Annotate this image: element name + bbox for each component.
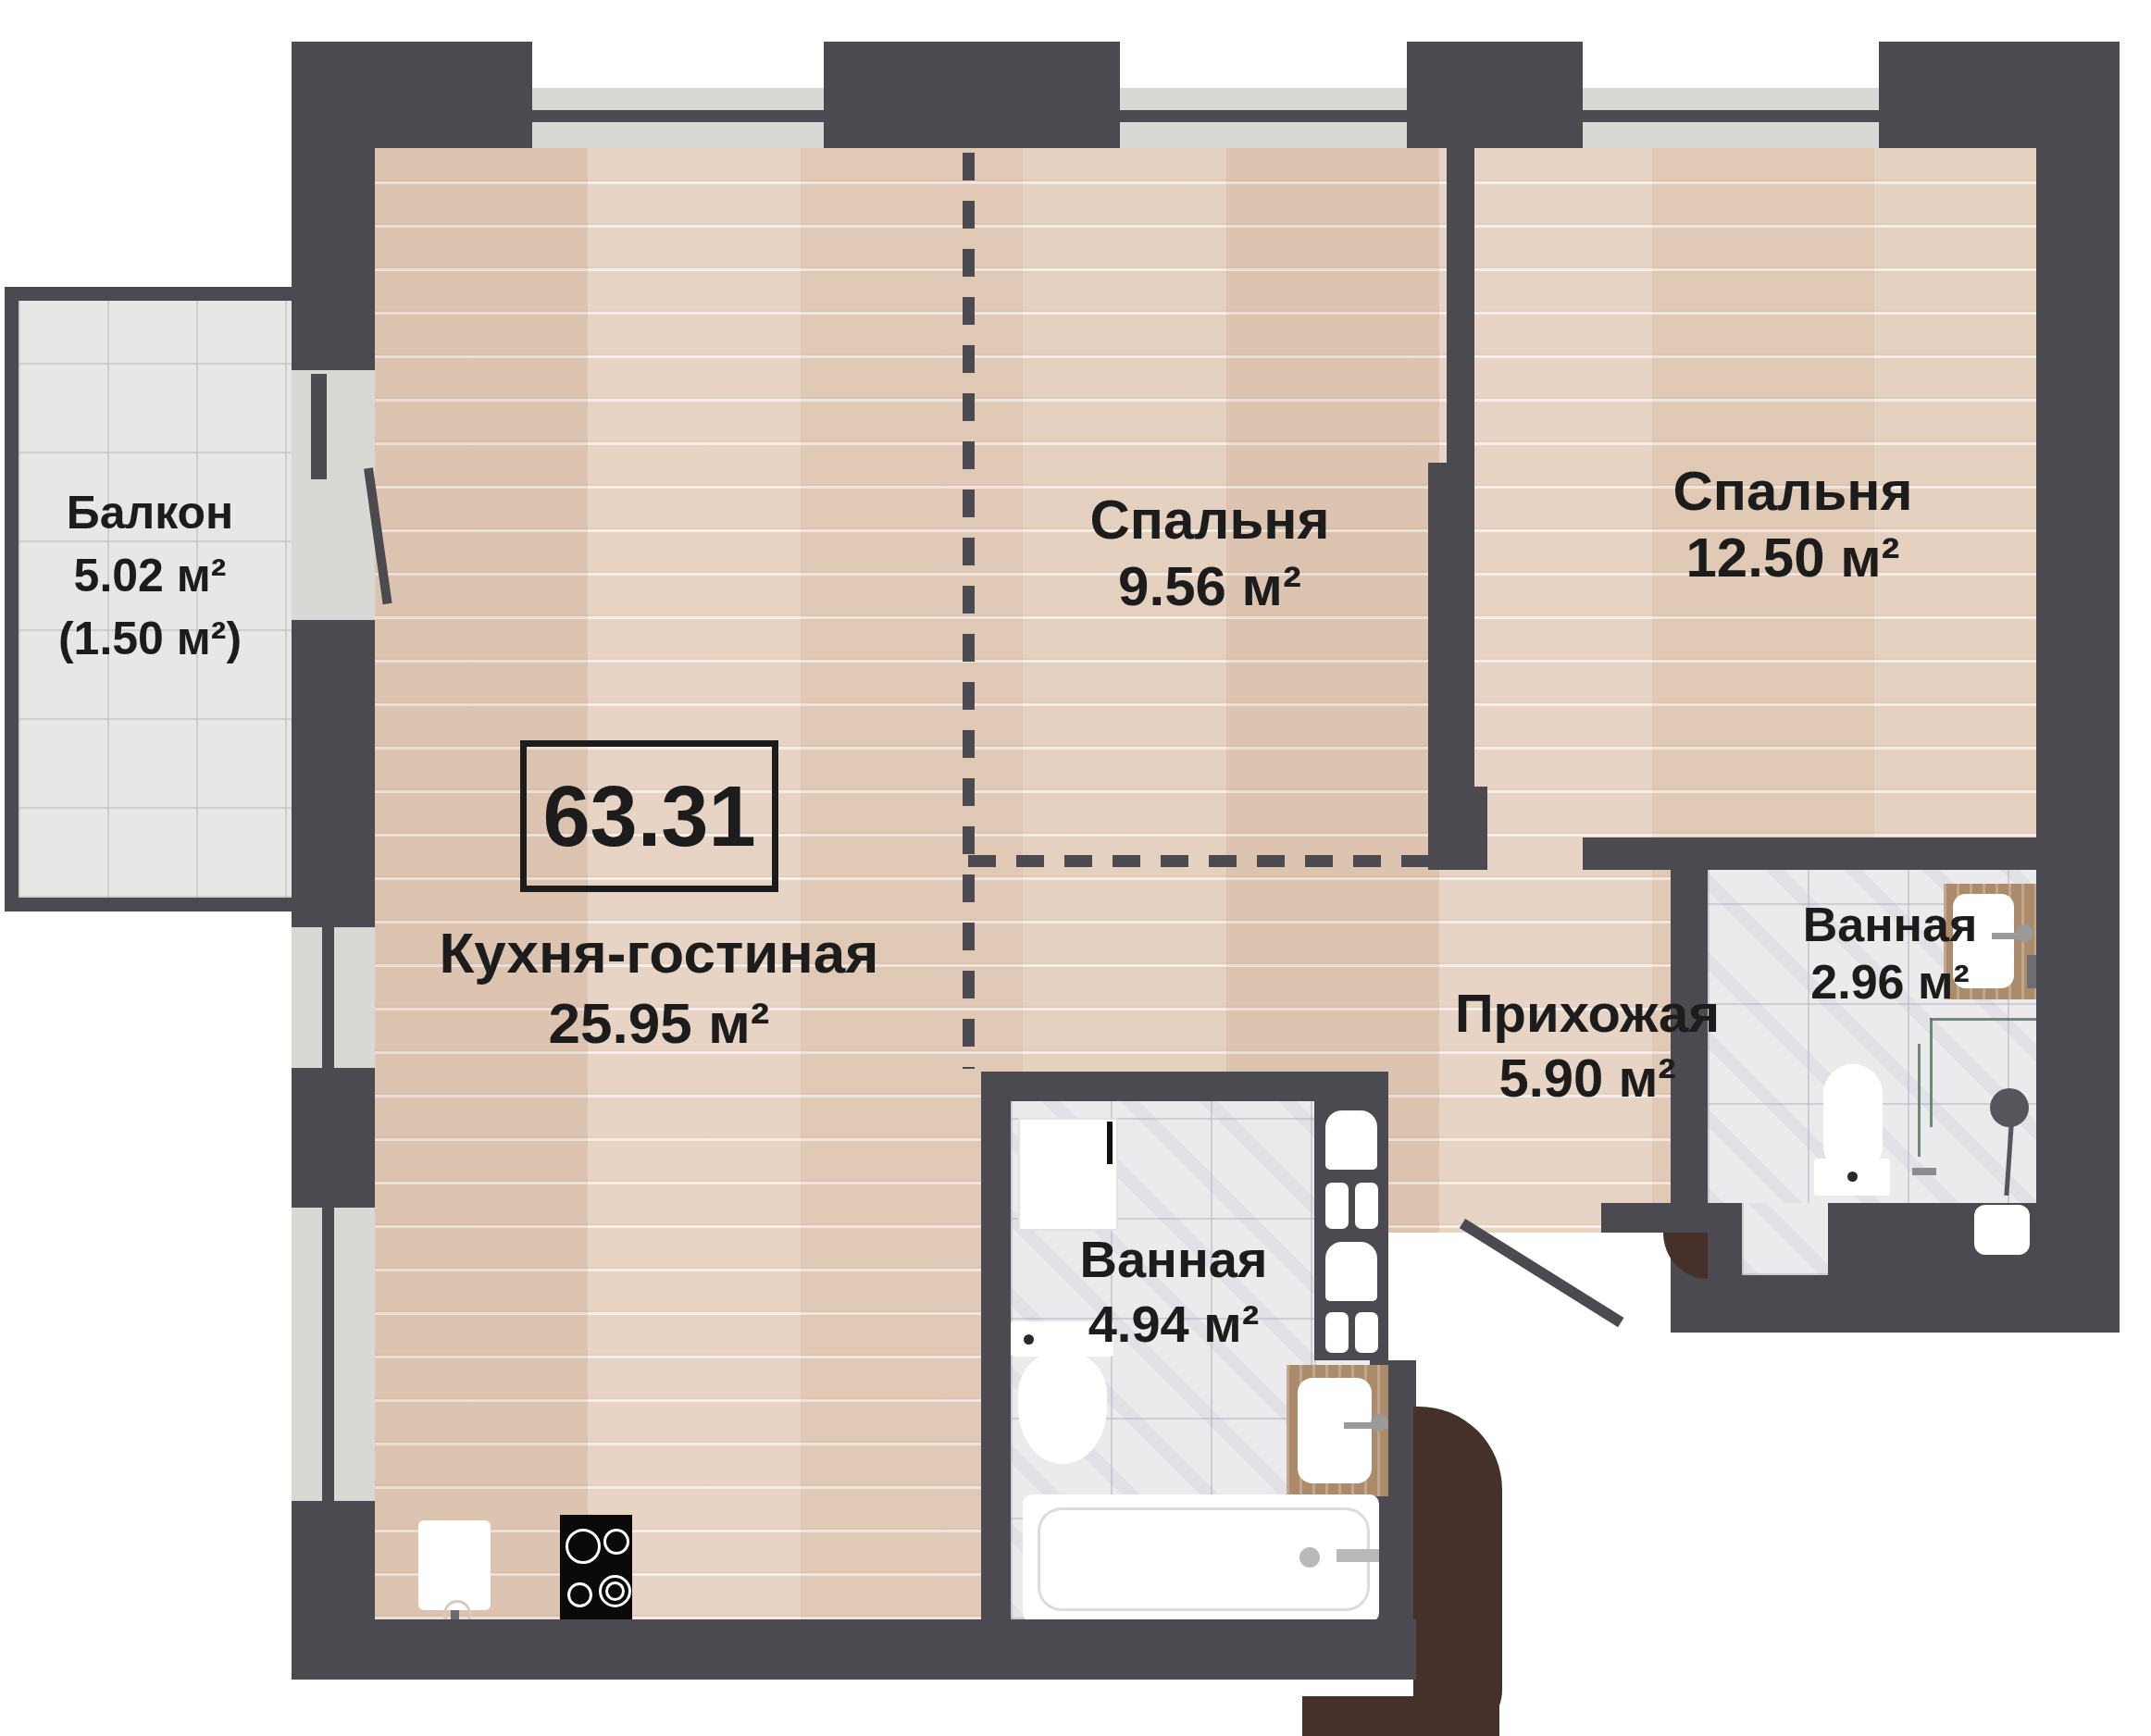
dashed-partition-horizontal [968, 855, 1436, 867]
room-name: Ванная [1803, 896, 1978, 953]
wall [824, 42, 1120, 148]
room-area: 2.96 м² [1803, 953, 1978, 1011]
bathtub-faucet-icon [1337, 1549, 1379, 1562]
stove-burner-icon [603, 1529, 629, 1555]
room-label-bathroom-second: Ванная 2.96 м² [1803, 896, 1978, 1011]
window [292, 927, 375, 1068]
room-area: 5.02 м² [58, 544, 242, 607]
shower-door-handle-icon [1912, 1168, 1936, 1175]
window-glazing-icon [1120, 110, 1407, 122]
bathroom-niche-floor [1742, 1203, 1828, 1275]
room-name: Балкон [58, 481, 242, 544]
room-name: Ванная [1079, 1227, 1267, 1292]
total-area-value: 63.31 [542, 768, 755, 865]
wall [1428, 463, 1474, 787]
stove-burner-icon [605, 1581, 625, 1601]
shower-glass-icon [1918, 1044, 1921, 1157]
washing-machine-detail-icon [1107, 1122, 1113, 1164]
room-area: 5.90 м² [1455, 1046, 1720, 1110]
room-label-balcony: Балкон 5.02 м² (1.50 м²) [58, 481, 242, 670]
room-label-bedroom-large: Спальня 12.50 м² [1672, 458, 1912, 591]
wall [292, 1501, 375, 1680]
kitchen-sink-icon [418, 1520, 491, 1610]
washing-machine-icon [1018, 1118, 1118, 1231]
wall [981, 1072, 1337, 1101]
window [292, 1208, 375, 1501]
shower-glass-icon [1930, 1018, 1933, 1127]
wall [1447, 148, 1474, 463]
total-area-box: 63.31 [520, 740, 778, 892]
wall [2036, 88, 2120, 1333]
toilet-bowl-icon [1018, 1351, 1107, 1464]
room-label-hallway: Прихожая 5.90 м² [1455, 981, 1720, 1110]
washing-machine-icon [1974, 1205, 2030, 1255]
floor-plan: 63.31 Балкон 5.02 м² (1.50 м²) Кухня-гос… [0, 0, 2151, 1736]
wall [981, 1072, 1011, 1680]
wall [292, 1068, 375, 1208]
window [1120, 88, 1407, 148]
room-area-reduced: (1.50 м²) [58, 607, 242, 670]
sink-icon [1298, 1378, 1372, 1483]
toilet-bowl-icon [1823, 1064, 1883, 1168]
window-glazing-icon [1583, 110, 1879, 122]
towel-radiator-icon [1325, 1183, 1349, 1229]
wall [5, 287, 292, 301]
room-area: 25.95 м² [440, 988, 879, 1059]
bathtub-drain-icon [1299, 1547, 1320, 1568]
dashed-partition-vertical [963, 153, 975, 1069]
room-name: Кухня-гостиная [440, 918, 879, 988]
shower-valve-icon [2027, 955, 2036, 988]
wall [292, 42, 532, 148]
towel-radiator-icon [1325, 1312, 1349, 1353]
wall [1601, 1203, 1708, 1233]
entrance-arc-icon [1302, 1696, 1499, 1736]
room-label-bathroom-main: Ванная 4.94 м² [1079, 1227, 1267, 1357]
window-glazing-icon [322, 1208, 334, 1501]
window-glazing-icon [532, 110, 824, 122]
wall [1428, 787, 1487, 870]
wall [5, 898, 292, 911]
faucet-knob-icon [1371, 1414, 1388, 1432]
wall [5, 287, 19, 911]
toilet-flush-icon [1847, 1172, 1858, 1182]
towel-radiator-icon [1325, 1110, 1377, 1170]
faucet-knob-icon [2016, 924, 2033, 942]
balcony-door-opening [292, 370, 375, 620]
window [1583, 88, 1879, 148]
entrance-arc-icon [1413, 1407, 1502, 1736]
shower-head-icon [1990, 1088, 2029, 1127]
wall [292, 1619, 1416, 1680]
balcony-door-leaf-icon [311, 374, 327, 479]
room-label-kitchen-living: Кухня-гостиная 25.95 м² [440, 918, 879, 1059]
room-name: Спальня [1089, 487, 1329, 553]
towel-radiator-icon [1355, 1183, 1378, 1229]
room-label-bedroom-small: Спальня 9.56 м² [1089, 487, 1329, 620]
room-name: Прихожая [1455, 981, 1720, 1046]
wall [292, 620, 375, 927]
room-name: Спальня [1672, 458, 1912, 525]
towel-radiator-icon [1355, 1312, 1378, 1353]
towel-radiator-icon [1325, 1242, 1377, 1301]
stove-burner-icon [567, 1582, 592, 1607]
shower-glass-icon [1930, 1018, 2036, 1021]
wall [292, 148, 375, 370]
window [532, 88, 824, 148]
stove-burner-icon [566, 1529, 601, 1564]
room-area: 4.94 м² [1079, 1292, 1267, 1357]
room-area: 12.50 м² [1672, 525, 1912, 591]
bathtub-inner-icon [1038, 1507, 1370, 1611]
wall [1407, 42, 1583, 148]
room-area: 9.56 м² [1089, 553, 1329, 620]
toilet-flush-icon [1024, 1334, 1034, 1345]
wall [1583, 837, 2036, 870]
window-glazing-icon [322, 927, 334, 1068]
